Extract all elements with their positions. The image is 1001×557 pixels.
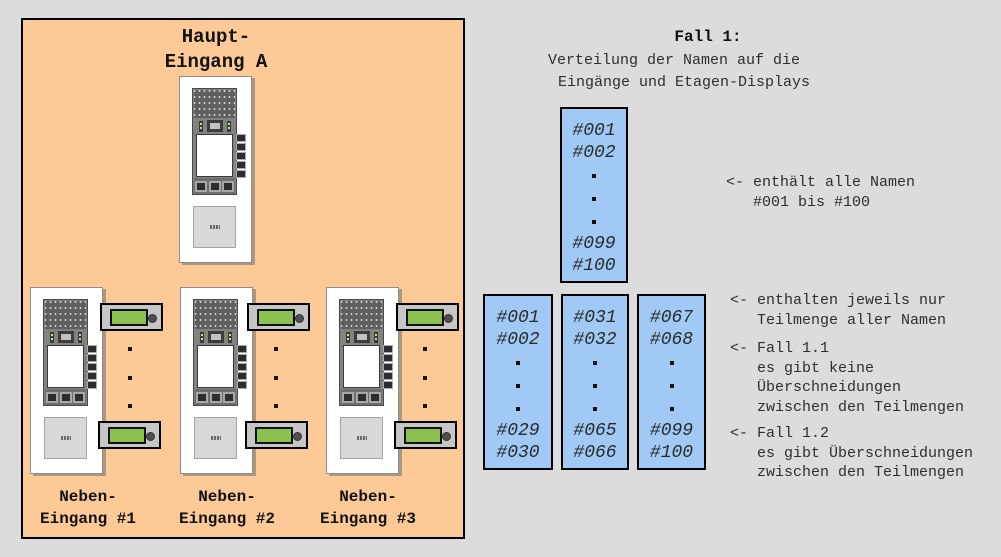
floor-display-module (98, 421, 161, 449)
ellipsis-dot (592, 174, 596, 178)
ellipsis-row (562, 164, 626, 187)
call-button (195, 181, 207, 192)
side-entrance-label-line1: Neben- (8, 486, 168, 508)
control-knob (444, 314, 453, 323)
keypad-module (194, 417, 237, 459)
side-button (236, 143, 246, 151)
name-entry: #001 (572, 120, 615, 142)
station-display (47, 345, 84, 388)
name-entry: #002 (572, 142, 615, 164)
name-entry: #002 (496, 329, 539, 351)
ellipsis-row (639, 397, 704, 420)
ellipsis-dot (670, 361, 674, 365)
ellipsis-row (485, 397, 551, 420)
intercom-module (43, 299, 88, 406)
name-entry: #099 (572, 233, 615, 255)
side-button (236, 161, 246, 169)
keypad-module (340, 417, 383, 459)
call-button-row (341, 389, 382, 405)
intercom-module (192, 88, 237, 195)
side-button (383, 345, 393, 353)
lcd-screen (406, 309, 444, 326)
side-entrance-label-line1: Neben- (288, 486, 448, 508)
call-button (46, 392, 58, 403)
brand-mark (211, 436, 221, 440)
name-entry: #029 (496, 420, 539, 442)
speaker-grille-icon (195, 301, 236, 329)
ellipsis-dot (274, 376, 278, 380)
lcd-screen (110, 309, 148, 326)
side-button (87, 345, 97, 353)
control-knob (295, 314, 304, 323)
lcd-screen (404, 427, 442, 444)
camera-lens-icon (208, 331, 224, 343)
annotation-case-1-1: <- Fall 1.1 es gibt keine Überschneidung… (730, 339, 964, 417)
ellipsis-dot (128, 376, 132, 380)
call-button (60, 392, 72, 403)
camera-lens-icon (354, 331, 370, 343)
side-button-column (236, 134, 247, 178)
annotation-case-1-2: <- Fall 1.2 es gibt Überschneidungen zwi… (730, 424, 973, 483)
call-button (210, 392, 222, 403)
name-entry: #068 (650, 329, 693, 351)
speaker-grille-icon (194, 90, 235, 118)
call-button (209, 181, 221, 192)
side-button (236, 170, 246, 178)
side-entrance-label-1: Neben- Eingang #1 (8, 486, 168, 530)
name-entry: #067 (650, 307, 693, 329)
side-button (383, 381, 393, 389)
side-button (87, 363, 97, 371)
lcd-screen (257, 309, 295, 326)
led-strip-icon (200, 332, 204, 343)
door-station-3 (326, 287, 399, 474)
speaker-grille-icon (341, 301, 382, 329)
led-strip-icon (346, 332, 350, 343)
ellipsis-dot (670, 407, 674, 411)
ellipsis-row (562, 210, 626, 233)
ellipsis-dot (592, 197, 596, 201)
ellipsis-dot (274, 347, 278, 351)
ellipsis-dot (516, 361, 520, 365)
name-entry: #032 (573, 329, 616, 351)
diagram-canvas: Haupt- Eingang A (0, 0, 1001, 557)
control-knob (148, 314, 157, 323)
ellipsis-dot (274, 404, 278, 408)
ellipsis-dot (593, 407, 597, 411)
name-entry: #030 (496, 442, 539, 464)
annotation-subsets: <- enthalten jeweils nur Teilmenge aller… (730, 291, 946, 330)
led-strip-icon (374, 332, 378, 343)
main-entrance-label-line1: Haupt- (110, 25, 322, 50)
ellipsis-dot (128, 347, 132, 351)
station-display (196, 134, 233, 177)
name-entry: #100 (650, 442, 693, 464)
led-strip-icon (78, 332, 82, 343)
side-button (236, 152, 246, 160)
call-button (342, 392, 354, 403)
side-button-column (237, 345, 248, 389)
side-button (383, 372, 393, 380)
side-button (237, 345, 247, 353)
ellipsis-dot (670, 384, 674, 388)
call-button (369, 392, 381, 403)
station-display (197, 345, 234, 388)
ellipsis-dot (128, 404, 132, 408)
call-button-row (45, 389, 86, 405)
control-knob (293, 432, 302, 441)
speaker-grille-icon (45, 301, 86, 329)
call-button (196, 392, 208, 403)
camera-lens-icon (207, 120, 223, 132)
side-entrance-label-2: Neben- Eingang #2 (147, 486, 307, 530)
name-box-full: #001 #002 #099 #100 (560, 107, 628, 283)
brand-mark (357, 436, 367, 440)
call-button (356, 392, 368, 403)
ellipsis-row (563, 374, 627, 397)
call-button-row (195, 389, 236, 405)
name-entry: #065 (573, 420, 616, 442)
side-entrance-label-line1: Neben- (147, 486, 307, 508)
control-knob (442, 432, 451, 441)
ellipsis-row (563, 397, 627, 420)
main-entrance-label-line2: Eingang A (110, 50, 322, 75)
side-button (236, 134, 246, 142)
call-button (73, 392, 85, 403)
intercom-module (193, 299, 238, 406)
ellipsis-dot (423, 404, 427, 408)
ellipsis-row (485, 351, 551, 374)
side-entrance-label-line2: Eingang #3 (288, 508, 448, 530)
side-button (87, 354, 97, 362)
led-strip-icon (50, 332, 54, 343)
main-entrance-label: Haupt- Eingang A (110, 25, 322, 75)
ellipsis-dot (592, 220, 596, 224)
floor-display-module (394, 421, 457, 449)
ellipsis-dot (593, 361, 597, 365)
call-button (223, 392, 235, 403)
camera-lens-icon (58, 331, 74, 343)
name-entry: #066 (573, 442, 616, 464)
ellipsis-row (639, 351, 704, 374)
name-box-subset-1: #001 #002 #029 #030 (483, 294, 553, 470)
side-entrance-label-line2: Eingang #1 (8, 508, 168, 530)
side-button (237, 354, 247, 362)
name-box-subset-2: #031 #032 #065 #066 (561, 294, 629, 470)
led-strip-icon (228, 332, 232, 343)
led-strip-icon (199, 121, 203, 132)
camera-unit (194, 330, 237, 344)
side-button-column (383, 345, 394, 389)
lcd-screen (108, 427, 146, 444)
name-box-subset-3: #067 #068 #099 #100 (637, 294, 706, 470)
ellipsis-row (639, 374, 704, 397)
door-station-main (179, 76, 252, 263)
intercom-module (339, 299, 384, 406)
side-entrance-label-3: Neben- Eingang #3 (288, 486, 448, 530)
camera-unit (340, 330, 383, 344)
name-entry: #099 (650, 420, 693, 442)
ellipsis-row (562, 187, 626, 210)
keypad-module (193, 206, 236, 248)
side-entrance-label-line2: Eingang #2 (147, 508, 307, 530)
brand-mark (61, 436, 71, 440)
floor-display-module (396, 303, 459, 331)
control-knob (146, 432, 155, 441)
case-subtitle-line2: Eingänge und Etagen-Displays (558, 74, 810, 91)
ellipsis-dot (516, 384, 520, 388)
ellipsis-dot (593, 384, 597, 388)
station-display (343, 345, 380, 388)
ellipsis-row (485, 374, 551, 397)
door-station-1 (30, 287, 103, 474)
lcd-screen (255, 427, 293, 444)
call-button (222, 181, 234, 192)
call-button-row (194, 178, 235, 194)
camera-unit (44, 330, 87, 344)
name-entry: #031 (573, 307, 616, 329)
side-button (237, 381, 247, 389)
side-button (87, 372, 97, 380)
side-button (237, 372, 247, 380)
door-station-2 (180, 287, 253, 474)
keypad-module (44, 417, 87, 459)
floor-display-module (245, 421, 308, 449)
case-title: Fall 1: (628, 28, 788, 46)
name-entry: #001 (496, 307, 539, 329)
brand-mark (210, 225, 220, 229)
side-button (87, 381, 97, 389)
ellipsis-dot (423, 347, 427, 351)
case-subtitle-line1: Verteilung der Namen auf die (548, 52, 800, 69)
side-button (383, 354, 393, 362)
side-button (383, 363, 393, 371)
name-entry: #100 (572, 255, 615, 277)
ellipsis-dot (423, 376, 427, 380)
side-button (237, 363, 247, 371)
camera-unit (193, 119, 236, 133)
floor-display-module (247, 303, 310, 331)
ellipsis-dot (516, 407, 520, 411)
led-strip-icon (227, 121, 231, 132)
side-button-column (87, 345, 98, 389)
floor-display-module (100, 303, 163, 331)
annotation-all-names: <- enthält alle Namen #001 bis #100 (726, 173, 915, 212)
ellipsis-row (563, 351, 627, 374)
